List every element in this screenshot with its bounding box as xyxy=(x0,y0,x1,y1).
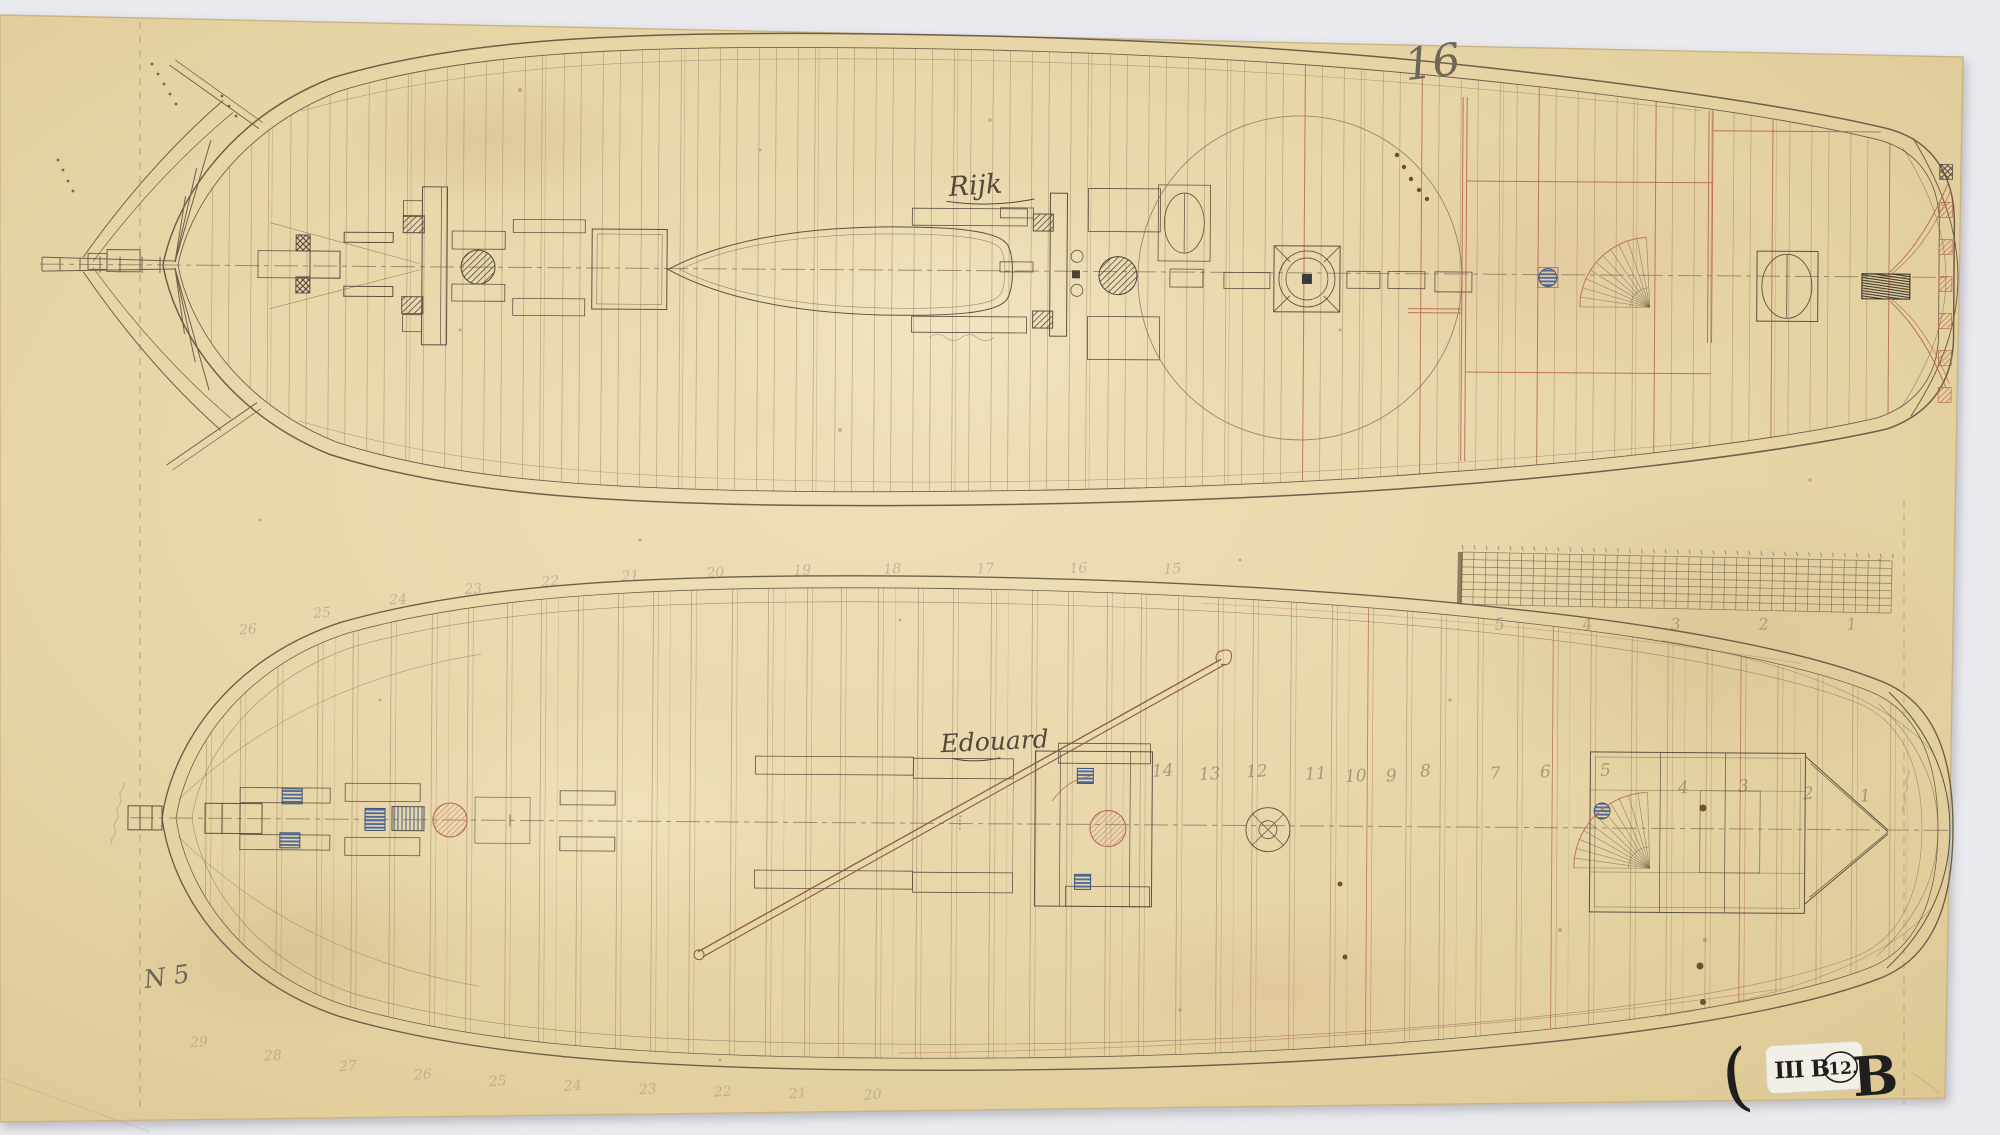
stern-block xyxy=(1862,274,1910,299)
station-number: 29 xyxy=(189,1034,209,1051)
station-number: 25 xyxy=(487,1073,507,1090)
capstan-center xyxy=(1302,274,1312,284)
station-number: 3 xyxy=(1737,776,1749,797)
ship-plan-drawing: Rijk xyxy=(0,0,2000,1135)
station-number: 8 xyxy=(1419,761,1431,782)
station-number: 14 xyxy=(1151,761,1174,782)
station-number: 11 xyxy=(1304,764,1327,785)
scale-number: 3 xyxy=(1670,614,1682,634)
station-number: 20 xyxy=(705,565,725,582)
foremast-section xyxy=(433,803,467,837)
station-number: 24 xyxy=(562,1078,582,1095)
archive-sticker: III B 12. xyxy=(1765,1041,1864,1094)
ship-name-top: Rijk xyxy=(947,169,1004,203)
station-number: 19 xyxy=(793,562,812,579)
station-number: 13 xyxy=(1198,764,1221,785)
station-number: 9 xyxy=(1385,766,1397,787)
scale-number: 1 xyxy=(1846,614,1858,634)
station-number: 21 xyxy=(787,1085,807,1102)
station-number: 4 xyxy=(1676,778,1689,799)
stamp-suffix: B xyxy=(1850,1042,1900,1109)
station-number: 22 xyxy=(712,1084,732,1101)
mainmast-section xyxy=(1099,256,1137,294)
station-number: 10 xyxy=(1344,766,1367,787)
station-number: 23 xyxy=(463,581,483,598)
ship-name-bottom: Edouard xyxy=(939,724,1049,758)
station-number: 22 xyxy=(540,573,560,590)
station-number: 28 xyxy=(263,1048,283,1065)
station-number: 24 xyxy=(388,591,408,608)
windlass-drum xyxy=(392,807,424,831)
station-number: 25 xyxy=(312,605,332,622)
station-number: 2 xyxy=(1801,784,1814,805)
scale-number: 2 xyxy=(1757,614,1770,634)
station-number: 15 xyxy=(1163,561,1182,578)
station-number: 6 xyxy=(1539,762,1551,783)
sheet-number: 16 xyxy=(1401,34,1463,91)
scale-number: 5 xyxy=(1494,614,1506,634)
mainmast-section-bottom xyxy=(1090,810,1126,846)
scale-number: 4 xyxy=(1581,614,1594,634)
station-number: 26 xyxy=(412,1067,432,1084)
station-number: 26 xyxy=(238,621,258,638)
station-number: 17 xyxy=(976,561,995,578)
station-number: 21 xyxy=(620,568,640,585)
station-number: 27 xyxy=(337,1058,357,1075)
station-number: 12 xyxy=(1245,761,1268,782)
station-number: 1 xyxy=(1859,786,1871,807)
scanned-ship-plan-sheet: Rijk xyxy=(0,0,2000,1135)
station-number: 23 xyxy=(637,1081,657,1098)
station-number: 7 xyxy=(1489,764,1501,785)
mizzenmast-section xyxy=(1539,269,1557,287)
station-number: 20 xyxy=(862,1087,882,1104)
station-number: 18 xyxy=(883,561,902,578)
station-number: 5 xyxy=(1599,760,1611,781)
station-number: 16 xyxy=(1069,560,1088,577)
stamp-series: III B xyxy=(1774,1055,1831,1085)
windlass-bitt xyxy=(365,808,385,830)
